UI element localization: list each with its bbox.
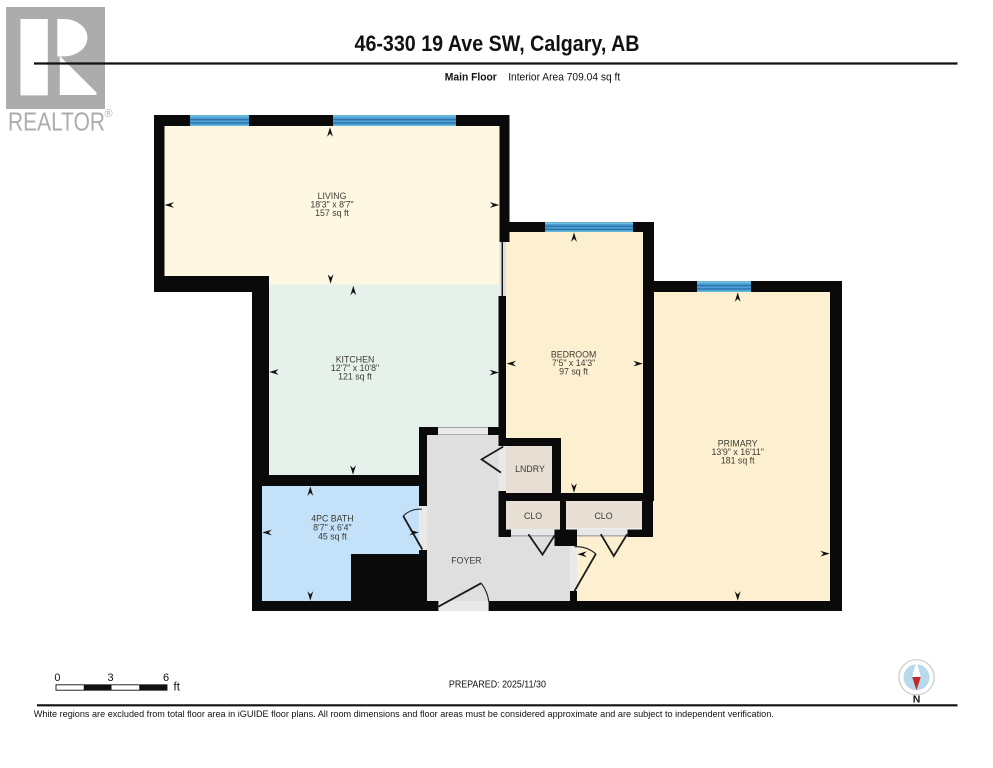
svg-text:CLO: CLO: [594, 511, 612, 521]
svg-text:N: N: [913, 694, 921, 706]
svg-text:121 sq ft: 121 sq ft: [338, 372, 372, 382]
svg-text:White regions are excluded fro: White regions are excluded from total fl…: [34, 709, 774, 719]
svg-text:6: 6: [163, 672, 169, 684]
svg-text:45 sq ft: 45 sq ft: [318, 532, 347, 542]
svg-text:3: 3: [107, 672, 113, 684]
svg-text:CLO: CLO: [524, 511, 542, 521]
svg-text:46-330 19 Ave SW, Calgary, AB: 46-330 19 Ave SW, Calgary, AB: [355, 31, 640, 56]
svg-text:Interior Area 709.04 sq ft: Interior Area 709.04 sq ft: [508, 72, 621, 84]
svg-text:Main Floor: Main Floor: [445, 72, 498, 84]
svg-text:FOYER: FOYER: [451, 556, 481, 566]
svg-text:LNDRY: LNDRY: [515, 464, 545, 474]
svg-text:181 sq ft: 181 sq ft: [721, 456, 755, 466]
svg-text:PREPARED: 2025/11/30: PREPARED: 2025/11/30: [449, 680, 546, 691]
svg-text:0: 0: [54, 672, 60, 684]
svg-text:®: ®: [105, 108, 113, 120]
svg-text:97 sq ft: 97 sq ft: [559, 367, 588, 377]
svg-text:157 sq ft: 157 sq ft: [315, 208, 349, 218]
svg-text:REALTOR: REALTOR: [8, 107, 105, 137]
svg-text:ft: ft: [174, 682, 181, 694]
